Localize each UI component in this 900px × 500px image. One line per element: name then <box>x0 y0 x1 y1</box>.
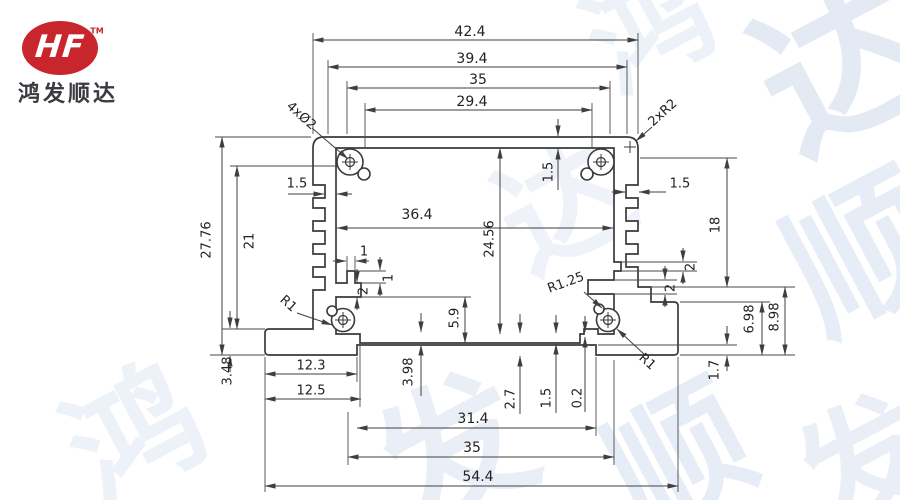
dim-overall-base-width: 54.4 <box>462 470 493 484</box>
dim-base-thickness: 2.7 <box>505 389 518 410</box>
dim-inner-width: 36.4 <box>401 208 432 222</box>
screw-holes <box>339 158 613 325</box>
dim-right-wall-thickness: 1.5 <box>670 178 691 191</box>
dim-inner-top-width: 29.4 <box>456 95 487 109</box>
dim-foot-height: 1.7 <box>709 360 722 381</box>
screw-bosses <box>327 149 620 332</box>
dim-rail-tab-height: 1 <box>383 274 396 282</box>
dim-rail-tab-width: 1 <box>360 246 368 259</box>
dim-base-offset-12-3: 12.3 <box>297 360 326 373</box>
dim-inner-height: 24.56 <box>484 220 497 257</box>
dimension-lines <box>222 40 785 486</box>
logo-trademark: TM <box>90 27 103 36</box>
dim-right-notch: 2 <box>685 263 698 271</box>
dim-width-39-4: 39.4 <box>456 52 487 66</box>
dim-overall-height: 27.76 <box>201 221 214 258</box>
dim-channel-width: 31.4 <box>457 412 488 426</box>
profile-cross-section-drawing <box>0 0 900 500</box>
dim-left-inner-height: 21 <box>244 233 257 250</box>
boss-notch <box>327 306 337 316</box>
dim-base-offset-12-5: 12.5 <box>297 385 326 398</box>
dim-right-inner-height: 18 <box>710 217 723 234</box>
dim-right-rail-thickness: 2 <box>665 284 678 292</box>
dim-step-0-2: 0.2 <box>572 388 585 409</box>
dim-step-1-5: 1.5 <box>541 388 554 409</box>
boss-notch <box>581 168 593 180</box>
dim-base-width-35: 35 <box>463 441 481 455</box>
dim-width-35-top: 35 <box>469 73 487 87</box>
dim-flange-outer-height: 6.98 <box>744 305 757 334</box>
dim-slot-depth: 3.98 <box>403 358 416 387</box>
dim-left-wall-thickness: 1.5 <box>287 178 308 191</box>
company-name: 鸿发顺达 <box>18 76 118 108</box>
dim-rail-height-above-base: 5.9 <box>449 308 462 329</box>
boss-notch <box>358 168 370 180</box>
extension-lines <box>210 33 795 492</box>
dim-top-wall-thickness: 1.5 <box>543 162 556 183</box>
dim-rail-thickness-left: 2 <box>358 287 371 295</box>
drawing-sheet: 达 鸿 顺 达 鸿 发 顺 发 HF TM 鸿发顺达 <box>0 0 900 500</box>
dim-flange-total-height: 8.98 <box>769 303 782 332</box>
logo-initials: HF <box>34 29 87 65</box>
dim-base-lip-height: 3.48 <box>222 357 235 386</box>
dim-overall-top-width: 42.4 <box>454 25 485 39</box>
